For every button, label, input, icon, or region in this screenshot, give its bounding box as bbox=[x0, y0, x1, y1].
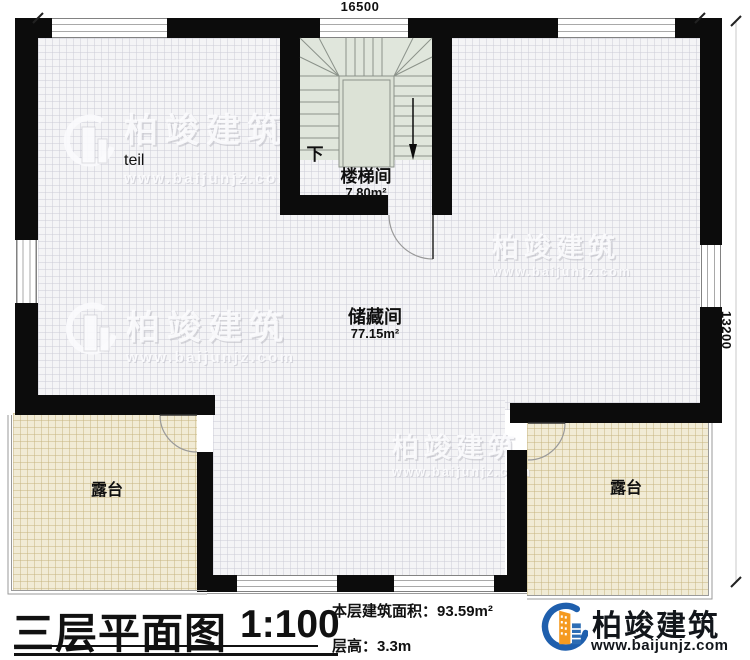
wall-top bbox=[167, 18, 320, 38]
wall-stair-right bbox=[432, 38, 452, 215]
dimension-right: 13200 bbox=[719, 300, 733, 360]
brand-site: www.baijunjz.com bbox=[591, 637, 728, 654]
terrace-right-name: 露台 bbox=[576, 480, 676, 498]
wall-bay-left bbox=[197, 452, 213, 592]
storage-room-area: 77.15m² bbox=[315, 327, 435, 341]
dimension-top: 16500 bbox=[300, 0, 420, 14]
brand-logo-icon bbox=[540, 602, 588, 656]
staircase-floor bbox=[300, 38, 432, 160]
floor-height-value: 3.3m bbox=[377, 638, 411, 655]
terrace-left-name: 露台 bbox=[57, 482, 157, 500]
window-top-left bbox=[52, 18, 167, 38]
stair-room-area: 7.80m² bbox=[316, 186, 416, 200]
floor-area-label: 本层建筑面积： bbox=[332, 603, 437, 620]
wall-bay-bottom bbox=[494, 575, 527, 592]
stair-down-label: 下 bbox=[304, 146, 326, 165]
wall-left bbox=[15, 18, 38, 240]
floor-height-label: 层高： bbox=[332, 638, 377, 655]
stair-room-name: 楼梯间 bbox=[316, 168, 416, 187]
window-bay-right bbox=[394, 575, 494, 592]
storage-bay-floor bbox=[213, 400, 505, 578]
window-bay-left bbox=[237, 575, 337, 592]
sheet-title: 三层平面图 bbox=[12, 600, 227, 660]
floor-height-line: 层高：3.3m bbox=[332, 635, 411, 656]
wall-stair-left bbox=[280, 38, 300, 215]
floor-area-line: 本层建筑面积：93.59m² bbox=[332, 600, 493, 621]
title-underline-thick bbox=[14, 653, 338, 656]
title-underline bbox=[14, 645, 318, 647]
wall-bay-bottom bbox=[197, 575, 237, 592]
wall-top bbox=[408, 18, 558, 38]
wall-storage-bottom-right bbox=[510, 403, 722, 423]
floor-plan-sheet: 柏竣建筑 teilwww.baijunjz.com 柏竣建筑 www.baiju… bbox=[0, 0, 750, 660]
terrace-left-floor bbox=[13, 413, 197, 590]
storage-room-name: 储藏间 bbox=[315, 308, 435, 328]
window-top-stair bbox=[320, 18, 408, 38]
sheet-scale: 1:100 bbox=[240, 603, 340, 647]
wall-right bbox=[700, 18, 722, 245]
floor-area-value: 93.59m² bbox=[437, 603, 493, 620]
terrace-right-floor bbox=[527, 421, 708, 596]
wall-bay-right bbox=[507, 450, 527, 592]
wall-storage-bottom-left bbox=[15, 395, 215, 415]
wall-bay-bottom bbox=[337, 575, 394, 592]
window-left bbox=[16, 240, 37, 303]
window-top-right bbox=[558, 18, 675, 38]
window-right bbox=[701, 245, 721, 307]
